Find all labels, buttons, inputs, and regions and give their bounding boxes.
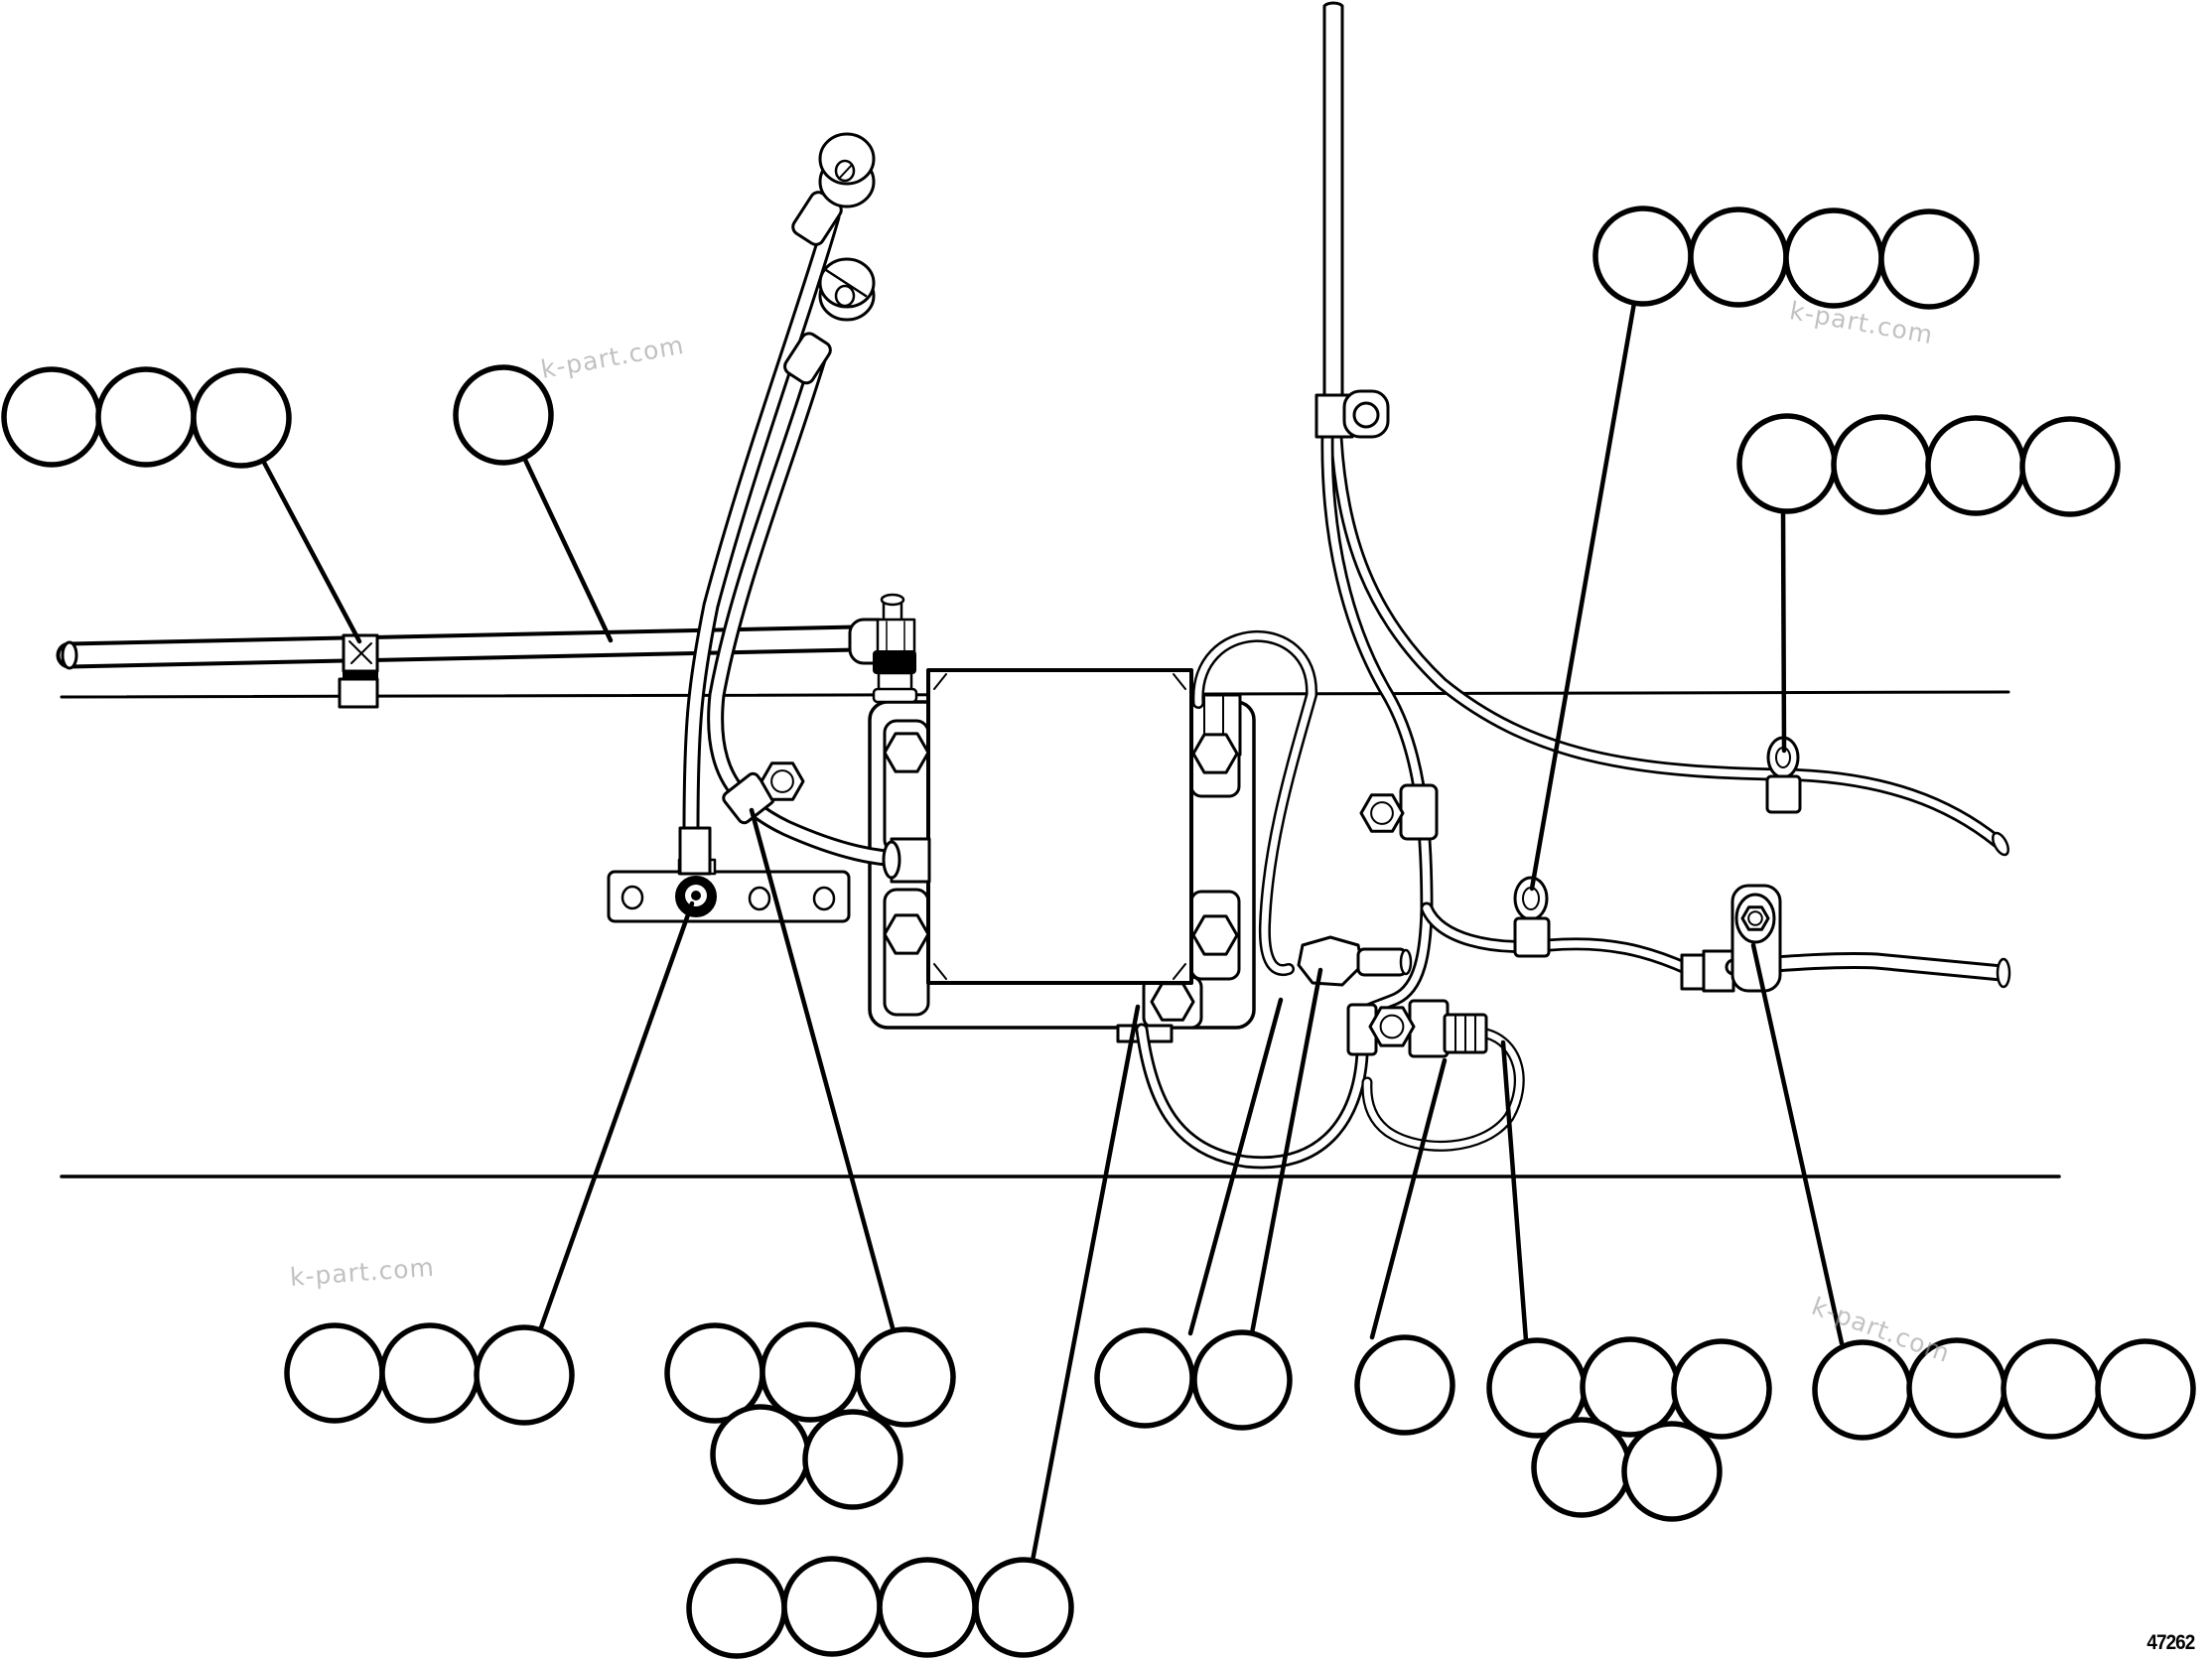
solenoid-valve: [1348, 1001, 1486, 1056]
group-right-balloon-4[interactable]: [2022, 419, 2118, 514]
group-bottom-right-center-balloon-4[interactable]: [1534, 1420, 1629, 1515]
group-bottom-four-balloon-3[interactable]: [880, 1560, 975, 1655]
group-bottom-single-balloon-1[interactable]: [1357, 1337, 1452, 1433]
group-bottom-center-balloon-4[interactable]: [713, 1407, 808, 1502]
leader-tube-clamp: [263, 461, 359, 641]
group-bottom-pair-balloon-1[interactable]: [1097, 1330, 1192, 1426]
group-top-right-balloon-1[interactable]: [1595, 208, 1691, 304]
leader-box-bottom: [1033, 1007, 1138, 1561]
leader-bracket-bolt: [1753, 945, 1842, 1343]
tube-clamp: [340, 635, 377, 707]
parts-diagram-page: k-part.comk-part.comk-part.comk-part.com…: [0, 0, 2212, 1661]
group-right-balloon-1[interactable]: [1739, 416, 1835, 511]
group-top-right-balloon-2[interactable]: [1691, 209, 1786, 305]
hose-bracket: [1732, 886, 1780, 991]
group-bottom-four-balloon-1[interactable]: [689, 1561, 784, 1656]
group-bottom-right-center-balloon-3[interactable]: [1674, 1341, 1769, 1437]
leader-hose-clamp-right: [1783, 511, 1784, 751]
group-bottom-four-balloon-4[interactable]: [976, 1560, 1071, 1655]
hex-bolt-icon: [1193, 735, 1237, 772]
leader-fuel-tube: [524, 458, 611, 640]
hex-bolt-icon: [761, 763, 803, 799]
hex-bolt-icon: [1361, 795, 1403, 831]
group-top-right-balloon-3[interactable]: [1786, 210, 1881, 306]
valve-body: [1410, 1001, 1448, 1056]
group-top-left-balloon-3[interactable]: [194, 370, 289, 466]
diagram-artwork: [0, 0, 2212, 1661]
cable-entry-boss: [884, 839, 929, 882]
leader-branch-clamp: [1532, 303, 1634, 889]
group-bottom-left-balloon-2[interactable]: [382, 1325, 478, 1421]
hex-bolt-icon: [1742, 907, 1768, 930]
group-bottom-right-balloon-1[interactable]: [1815, 1342, 1910, 1438]
hex-bolt-icon: [1193, 916, 1237, 954]
vertical-tube-clamp: [1316, 391, 1388, 437]
group-bottom-center-balloon-2[interactable]: [762, 1324, 858, 1420]
group-bottom-center-balloon-5[interactable]: [805, 1412, 900, 1507]
under-box-hose-loop: [1142, 1030, 1362, 1163]
group-bottom-center-balloon-3[interactable]: [858, 1329, 953, 1425]
group-right-balloon-2[interactable]: [1834, 417, 1929, 512]
group-bottom-right-balloon-4[interactable]: [2098, 1341, 2193, 1437]
quick-connector: [1682, 951, 1733, 991]
group-top-left-balloon-1[interactable]: [4, 369, 99, 465]
group-top-right-balloon-4[interactable]: [1881, 211, 1977, 307]
hex-bolt-icon: [1152, 984, 1193, 1020]
group-bottom-left-balloon-3[interactable]: [477, 1327, 572, 1423]
leader-terminal-stud: [540, 903, 692, 1330]
box-top-fitting: [850, 595, 916, 702]
hose-clamp-mid: [1401, 785, 1437, 839]
drawing-number: 47262: [2146, 1631, 2194, 1655]
hex-bolt-icon: [885, 734, 928, 771]
hex-bolt-icon: [1370, 1008, 1414, 1045]
group-bottom-four-balloon-2[interactable]: [784, 1559, 880, 1654]
group-top-single-balloon-1[interactable]: [456, 367, 551, 463]
group-bottom-pair-balloon-2[interactable]: [1194, 1332, 1290, 1428]
elbow-fitting: [1299, 937, 1411, 985]
box-cover-plate: [928, 670, 1191, 983]
leader-valve-body: [1372, 1060, 1445, 1337]
cable-ferrule: [680, 828, 710, 874]
vertical-tube: [1324, 3, 1342, 437]
group-bottom-left-balloon-1[interactable]: [287, 1325, 382, 1421]
group-top-left-balloon-2[interactable]: [98, 369, 194, 465]
hex-bolt-icon: [885, 915, 928, 953]
group-bottom-right-center-balloon-5[interactable]: [1624, 1424, 1720, 1519]
group-right-balloon-3[interactable]: [1928, 418, 2023, 513]
group-bottom-right-balloon-3[interactable]: [2004, 1341, 2099, 1437]
